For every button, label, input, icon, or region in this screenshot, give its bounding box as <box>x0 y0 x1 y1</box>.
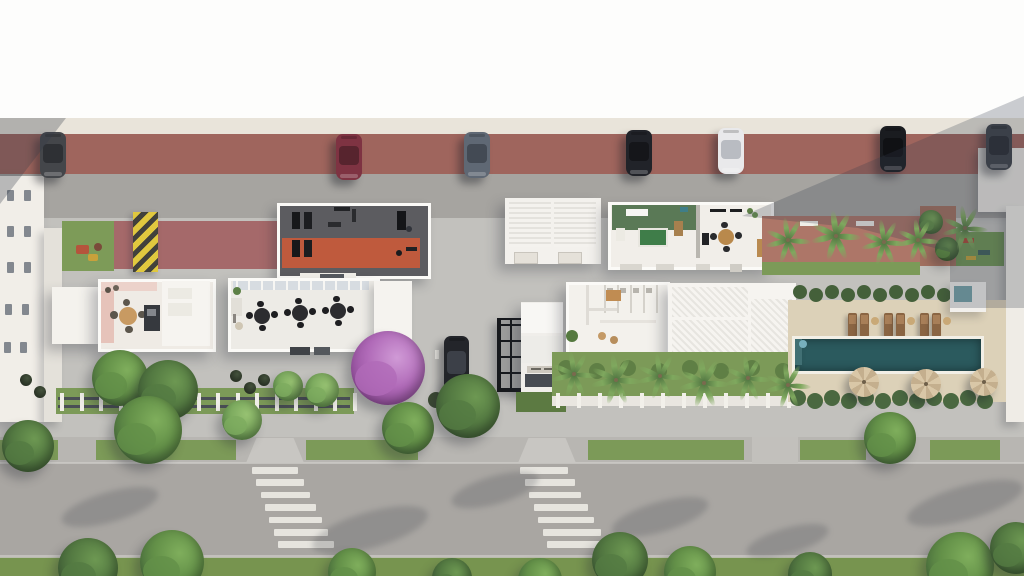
tree-blob <box>993 543 1023 568</box>
games-entry <box>730 264 742 272</box>
ac-vent <box>290 347 310 355</box>
tree-blob <box>330 567 358 576</box>
mid-wall-post <box>745 393 749 408</box>
tree-blob <box>61 562 96 576</box>
games-console <box>702 233 709 245</box>
car-rear <box>991 126 1008 129</box>
coworking-table-chair <box>347 306 354 313</box>
residential-window <box>7 190 14 201</box>
coworking-lamp <box>233 314 236 323</box>
party-dining-table-chair <box>110 311 118 319</box>
games-easel <box>616 228 625 241</box>
party-kitchen-counter <box>147 309 156 316</box>
fence-post <box>216 393 220 411</box>
pool-hedge-top <box>873 288 887 302</box>
parked-car-street <box>40 132 66 178</box>
gym-ladder <box>352 209 356 222</box>
ribbed1-door <box>514 252 538 264</box>
trimmed-bush-blob <box>307 387 327 403</box>
pool-hedge-top <box>921 285 935 299</box>
tree-blob <box>224 416 247 435</box>
ribbed2-roof-panel <box>672 287 748 317</box>
mid-garden-wall <box>552 396 798 406</box>
games-window <box>696 264 710 270</box>
games-tv <box>680 207 688 212</box>
pool-hedge-top <box>825 285 839 299</box>
zebra-crossing-2-stripe <box>538 517 594 524</box>
treadmill <box>304 240 312 257</box>
patio-umbrella <box>849 367 879 397</box>
ribbed1-roof-panel <box>554 202 596 247</box>
gym-bench <box>328 222 341 227</box>
lobby-sign-text <box>531 368 541 370</box>
car-rear <box>469 134 486 137</box>
pool-hedge-top <box>857 285 871 299</box>
ac-vent <box>314 347 330 355</box>
lobby-sign-text <box>544 368 552 370</box>
car-glass-roof <box>883 138 903 157</box>
mid-wall-post <box>556 393 560 408</box>
potted-shrub <box>244 382 256 394</box>
tree-blob <box>95 372 127 399</box>
trimmed-bush <box>273 371 303 401</box>
chg-chair <box>598 332 606 340</box>
sidewalk-lawn <box>930 440 1000 460</box>
plaza-tree-blob <box>936 247 950 258</box>
sidewalk-lawn <box>800 440 866 460</box>
lounger-side-table <box>871 317 879 325</box>
tree-blob <box>667 567 697 576</box>
pool-house-glass <box>954 286 972 302</box>
coworking-table <box>330 303 346 319</box>
mid-wall-post <box>598 393 602 408</box>
car-hood <box>44 172 62 176</box>
residential-window <box>22 304 29 315</box>
purple-flowering-tree-blob <box>355 361 398 396</box>
parked-car-street <box>880 126 906 172</box>
coworking-table-chair <box>309 308 316 315</box>
coworking-mullion <box>273 281 275 290</box>
pool-hedge-top <box>841 288 855 302</box>
outdoor-gym-equipment <box>978 250 990 255</box>
umbrella-pole <box>924 382 928 386</box>
sun-lounger <box>860 313 869 337</box>
coworking-table-chair <box>284 309 291 316</box>
ribbed1-roof-panel <box>509 202 551 247</box>
parked-car-street <box>464 132 490 178</box>
chg-wall <box>589 308 617 311</box>
car-hood <box>630 170 648 174</box>
games-plant <box>752 212 758 218</box>
palm-trunk <box>572 372 576 376</box>
lounger-side-table <box>907 317 915 325</box>
mid-wall-post <box>661 393 665 408</box>
umbrella-pole <box>982 380 986 384</box>
stall-partition <box>643 285 645 313</box>
stall-partition <box>630 285 632 313</box>
fence-post <box>60 393 64 411</box>
coworking-table-chair <box>246 312 253 319</box>
lounger-cushion <box>861 315 868 324</box>
games-window <box>620 264 642 270</box>
mid-wall-post <box>682 393 686 408</box>
palm-trunk <box>963 226 967 230</box>
umbrella-pole <box>862 380 866 384</box>
pool-hedge-bottom <box>875 393 891 409</box>
zebra-crossing-1-stripe <box>252 467 298 474</box>
purple-flowering-tree <box>351 331 425 405</box>
mid-wall-post <box>724 393 728 408</box>
car-hood <box>722 168 740 172</box>
coworking-table <box>254 308 270 324</box>
palm-trunk <box>882 240 886 244</box>
potted-shrub <box>230 370 242 382</box>
party-terrace-chair <box>113 285 119 291</box>
pool-hedge-top <box>937 288 951 302</box>
zebra-crossing-2-stripe <box>534 504 588 511</box>
foosball-table <box>638 228 668 247</box>
sun-lounger <box>932 313 941 337</box>
tree-blob <box>143 556 180 576</box>
tree-blob <box>5 441 35 466</box>
tree-blob <box>790 570 815 576</box>
games-window <box>656 264 674 270</box>
fence-post <box>353 393 357 411</box>
mid-wall-post <box>766 393 770 408</box>
stall-partition <box>656 285 658 313</box>
walkway-bench <box>856 221 874 226</box>
car-hood <box>990 164 1008 168</box>
zebra-crossing-2-stripe <box>543 529 601 536</box>
car-rear <box>631 132 648 135</box>
car-rear <box>341 136 358 139</box>
gym-person <box>406 226 412 232</box>
tree <box>382 402 434 454</box>
pool-hedge-top <box>889 285 903 299</box>
coworking-side-table <box>235 322 243 330</box>
stall-fixture <box>646 288 652 293</box>
pool-hedge-bottom <box>824 390 840 406</box>
car-glass-roof <box>43 144 63 163</box>
lounger-cushion <box>897 315 904 324</box>
residential-window <box>7 262 14 273</box>
car-rear <box>885 128 902 131</box>
parked-car-street <box>626 130 652 176</box>
chg-plant <box>566 330 578 342</box>
dumbbell-rack <box>406 247 417 251</box>
coworking-table-chair <box>322 307 329 314</box>
zebra-crossing-1-stripe <box>265 504 316 511</box>
residential-window <box>24 226 31 237</box>
ribbed2-roof-panel <box>672 320 748 353</box>
chg-wall <box>600 320 656 323</box>
parked-car-street <box>718 128 744 174</box>
games-shelf <box>710 209 726 212</box>
coworking-mullion <box>360 281 362 290</box>
tree <box>114 396 182 464</box>
party-dining-table-chair <box>125 326 133 334</box>
party-dining-table <box>119 307 137 325</box>
pool-hedge-bottom <box>892 390 908 406</box>
sky <box>0 0 1024 118</box>
parking-strip <box>0 134 1024 175</box>
patio-umbrella <box>911 369 941 399</box>
tree <box>222 400 262 440</box>
lounger-cushion <box>849 315 856 324</box>
palm-trunk <box>658 374 662 378</box>
swimming-pool <box>792 336 984 374</box>
lounger-cushion <box>933 315 940 324</box>
zebra-crossing-1-stripe <box>269 517 322 524</box>
residential-window <box>20 342 27 353</box>
car-rear <box>449 338 465 341</box>
chg-chair <box>610 336 618 344</box>
aerial-site-render <box>0 0 1024 576</box>
coworking-mullion <box>261 281 263 290</box>
pool-hedge-top <box>809 288 823 302</box>
chg-wood-table <box>606 290 621 301</box>
residential-window <box>24 190 31 201</box>
car-hood <box>884 166 902 170</box>
ribbed2-roof-panel <box>751 299 792 353</box>
car-glass-roof <box>989 136 1009 155</box>
car-glass-roof <box>467 144 487 163</box>
zebra-crossing-2-stripe <box>529 492 581 499</box>
residential-window <box>24 262 31 273</box>
coworking-table-chair <box>271 311 278 318</box>
driveway-apron <box>752 437 798 463</box>
potted-shrub <box>34 386 46 398</box>
pool-hedge-top <box>793 285 807 299</box>
pool-hedge-bottom <box>960 390 976 406</box>
coworking-mullion <box>248 281 250 290</box>
palm-trunk <box>786 238 790 242</box>
pool-hedge-bottom <box>943 393 959 409</box>
car-glass-roof <box>339 146 359 165</box>
chg-wall <box>586 285 589 325</box>
coworking-mullion <box>335 281 337 290</box>
patio-umbrella <box>970 368 998 396</box>
sun-lounger <box>884 313 893 337</box>
palm-trunk <box>916 238 920 242</box>
residential-window <box>4 342 11 353</box>
car-hood <box>468 172 486 176</box>
pool-float <box>799 340 807 348</box>
car-glass-roof <box>447 351 466 375</box>
ribbed1-door <box>558 252 582 264</box>
trimmed-bush <box>305 373 339 407</box>
fence-post <box>80 393 84 411</box>
outdoor-gym-equipment <box>966 256 976 260</box>
treadmill <box>292 212 300 229</box>
sun-lounger <box>920 313 929 337</box>
lounger-side-table <box>943 317 951 325</box>
sidewalk-lawn <box>588 440 744 460</box>
games-round-table-chair <box>710 233 717 240</box>
tree <box>2 420 54 472</box>
parked-car-street <box>986 124 1012 170</box>
bollard <box>435 350 439 359</box>
mid-wall-post <box>577 393 581 408</box>
car-hood <box>340 174 358 178</box>
car-rear <box>723 130 740 133</box>
tree-blob <box>867 433 897 458</box>
car-rear <box>45 134 62 137</box>
weight-machine <box>397 211 406 230</box>
coworking-table <box>292 305 308 321</box>
games-round-table <box>718 229 734 245</box>
sun-lounger <box>896 313 905 337</box>
sun-lounger <box>848 313 857 337</box>
play-equipment-red <box>76 245 89 254</box>
lounger-cushion <box>921 315 928 324</box>
tree-blob <box>595 554 627 576</box>
tree-blob <box>929 559 968 576</box>
party-terrace-chair <box>105 287 111 293</box>
lounger-cushion <box>885 315 892 324</box>
mid-wall-post <box>640 393 644 408</box>
residential-window <box>7 226 14 237</box>
treadmill <box>292 240 300 257</box>
pool-hedge-top <box>905 288 919 302</box>
trimmed-bush-blob <box>275 383 292 397</box>
gym-wall-rack <box>334 207 350 211</box>
coworking-mullion <box>310 281 312 290</box>
top-curb <box>0 118 1024 135</box>
coworking-mullion <box>286 281 288 290</box>
potted-shrub <box>20 374 32 386</box>
hazard-crossing <box>133 212 158 272</box>
tree <box>436 374 500 438</box>
coworking-mullion <box>348 281 350 290</box>
parked-car-street <box>336 134 362 180</box>
tree <box>864 412 916 464</box>
tree-blob <box>439 400 476 430</box>
play-equipment-yellow <box>88 254 98 261</box>
coworking-mullion <box>323 281 325 290</box>
palm-trunk <box>786 383 790 387</box>
lobby-roof-panel <box>521 303 563 333</box>
tree-blob <box>117 423 156 455</box>
zebra-crossing-1-stripe <box>261 492 310 499</box>
party-roof-box <box>168 303 192 316</box>
residential-window <box>5 304 12 315</box>
pool-hedge-bottom <box>841 393 857 409</box>
stall-fixture <box>633 288 639 293</box>
play-equipment-round <box>94 243 102 251</box>
car-glass-roof <box>721 140 741 159</box>
car-glass-roof <box>629 142 649 161</box>
coworking-mullion <box>298 281 300 290</box>
kettlebell <box>396 250 402 256</box>
treadmill <box>304 212 312 229</box>
games-cabinet <box>674 221 683 236</box>
right-building-edge <box>1006 206 1024 422</box>
games-partition <box>696 205 700 258</box>
games-round-table-chair <box>735 232 742 239</box>
tree-blob <box>385 423 415 448</box>
games-shelf <box>730 209 742 212</box>
pool-hedge-bottom <box>807 393 823 409</box>
coworking-plant <box>233 287 241 295</box>
zebra-crossing-1-stripe <box>256 479 304 486</box>
palm-trunk <box>746 376 750 380</box>
party-roof-box <box>168 288 192 299</box>
party-roof-tiled <box>52 287 100 344</box>
games-whiteboard <box>626 209 648 216</box>
walkway-lawn-right <box>762 262 920 275</box>
potted-shrub <box>258 374 270 386</box>
